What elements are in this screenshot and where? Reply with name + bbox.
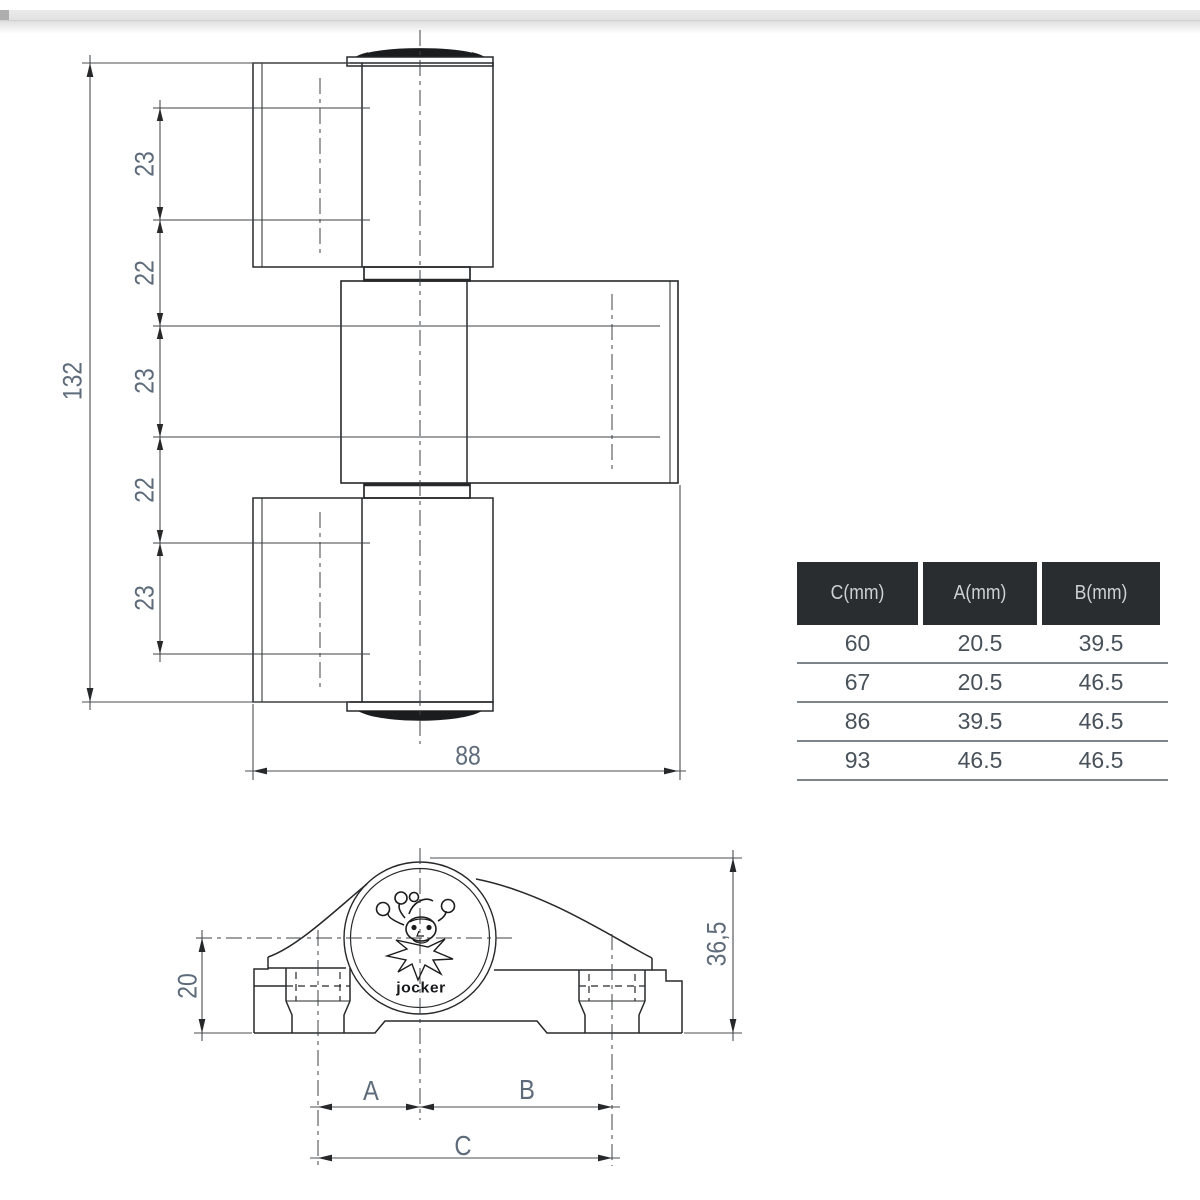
profile-outline bbox=[254, 879, 682, 1033]
spec-table-header: C(mm) A(mm) B(mm) bbox=[797, 562, 1168, 625]
bottom-dim-a-b bbox=[310, 1104, 620, 1111]
cell-c: 60 bbox=[797, 630, 918, 657]
dim-chain-3: 23 bbox=[132, 368, 159, 394]
cell-c: 86 bbox=[797, 708, 918, 735]
header-cell-c: C(mm) bbox=[797, 562, 918, 625]
cell-a: 39.5 bbox=[923, 708, 1037, 735]
cell-b: 46.5 bbox=[1042, 747, 1160, 774]
cell-c: 93 bbox=[797, 747, 918, 774]
front-middle-knuckle bbox=[341, 281, 678, 483]
cell-b: 39.5 bbox=[1042, 630, 1160, 657]
cell-b: 46.5 bbox=[1042, 708, 1160, 735]
table-row: 86 39.5 46.5 bbox=[797, 703, 1168, 742]
dim-chain-2: 22 bbox=[132, 260, 159, 286]
spec-table: C(mm) A(mm) B(mm) 60 20.5 39.5 67 20.5 4… bbox=[797, 562, 1168, 781]
dim-overall-height: 132 bbox=[60, 362, 87, 400]
cell-a: 20.5 bbox=[923, 669, 1037, 696]
front-bottom-knuckle bbox=[253, 498, 493, 702]
front-top-knuckle bbox=[253, 63, 493, 267]
dim-chain-5: 23 bbox=[132, 585, 159, 611]
dim-total-height: 36,5 bbox=[704, 922, 731, 967]
dim-chain-1: 23 bbox=[132, 151, 159, 177]
table-row: 60 20.5 39.5 bbox=[797, 625, 1168, 664]
dim-overall-width: 88 bbox=[455, 743, 481, 770]
front-elevation-view bbox=[82, 30, 686, 780]
header-cell-b: B(mm) bbox=[1042, 562, 1160, 625]
cell-a: 20.5 bbox=[923, 630, 1037, 657]
dim-b-label: B bbox=[519, 1076, 535, 1104]
cell-a: 46.5 bbox=[923, 747, 1037, 774]
bottom-dim-20 bbox=[194, 930, 252, 1041]
bottom-centerlines bbox=[196, 848, 612, 1166]
cell-c: 67 bbox=[797, 669, 918, 696]
front-hole-centerlines bbox=[153, 108, 660, 654]
dim-a-label: A bbox=[363, 1077, 379, 1105]
dim-c-label: C bbox=[454, 1132, 471, 1160]
cell-b: 46.5 bbox=[1042, 669, 1160, 696]
brand-logo-text: jocker bbox=[396, 980, 446, 997]
front-dim-88 bbox=[245, 485, 686, 780]
dim-chain-4: 22 bbox=[132, 477, 159, 503]
dim-base-height: 20 bbox=[175, 973, 202, 999]
front-centerlines bbox=[320, 30, 612, 744]
header-cell-a: A(mm) bbox=[923, 562, 1037, 625]
table-row: 93 46.5 46.5 bbox=[797, 742, 1168, 781]
bottom-profile-view bbox=[194, 848, 742, 1166]
table-row: 67 20.5 46.5 bbox=[797, 664, 1168, 703]
spec-table-body: 60 20.5 39.5 67 20.5 46.5 86 39.5 46.5 9… bbox=[797, 625, 1168, 781]
jester-logo bbox=[377, 892, 455, 980]
front-dim-132 bbox=[82, 55, 350, 710]
